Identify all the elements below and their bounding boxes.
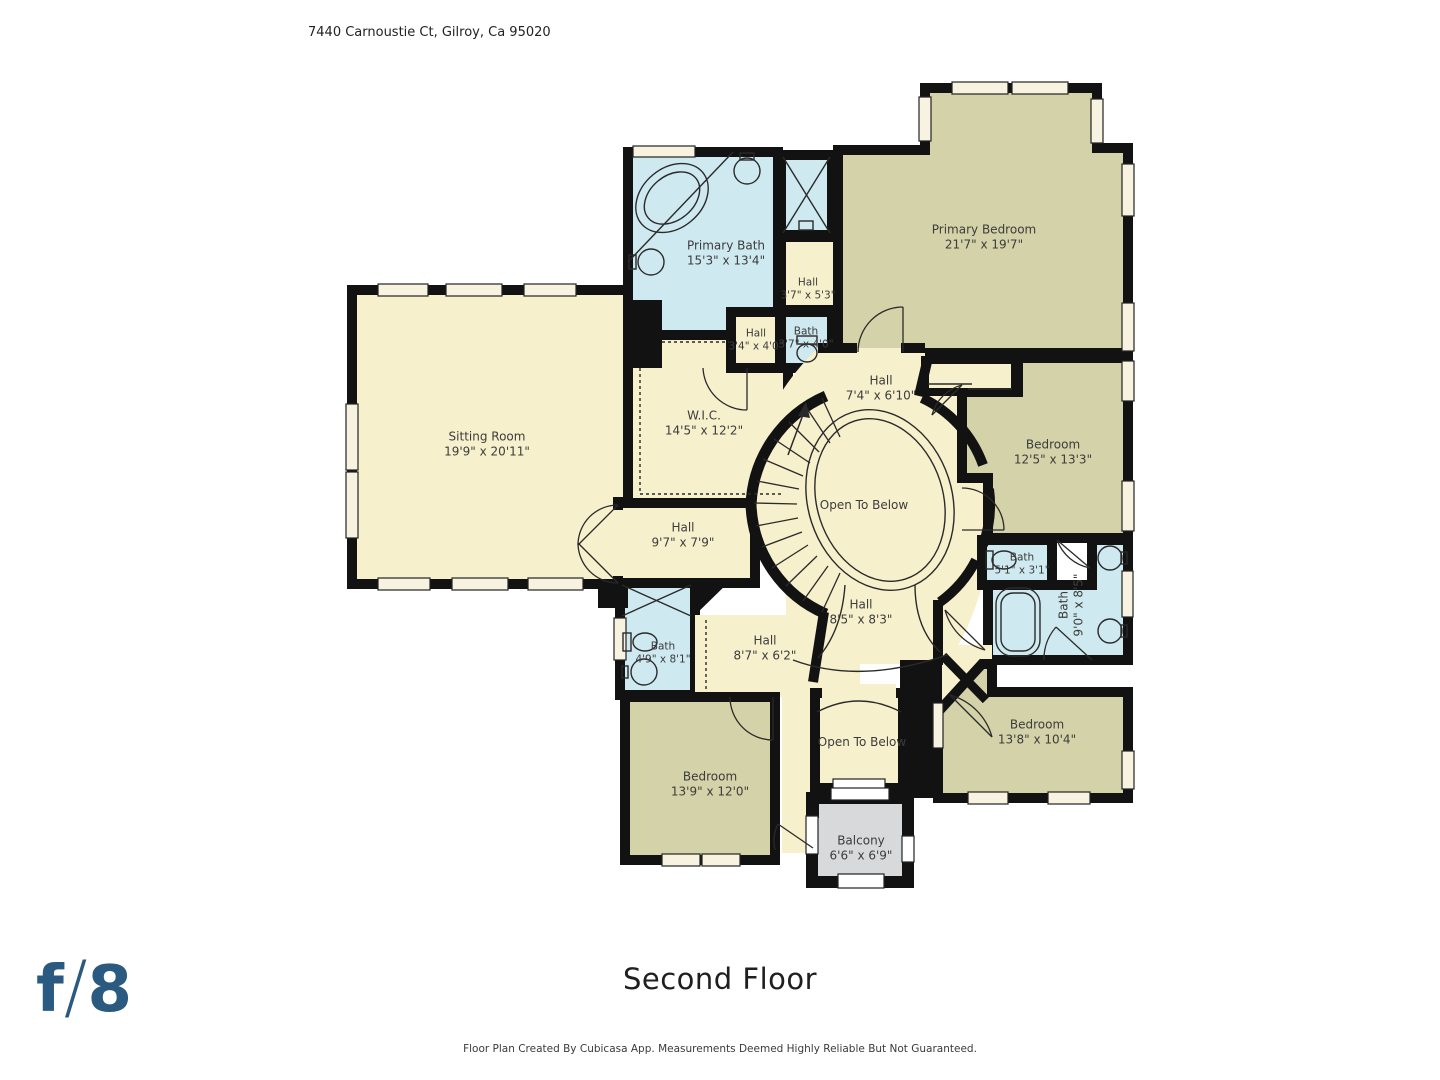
floor-title: Second Floor	[0, 962, 1440, 996]
room-name: Hall	[846, 374, 917, 389]
room-label-wic: W.I.C. 14'5" x 12'2"	[665, 409, 743, 438]
room-dims: 21'7" x 19'7"	[932, 237, 1036, 252]
room-label-primary-bedroom: Primary Bedroom 21'7" x 19'7"	[932, 223, 1036, 252]
logo-eight: 8	[87, 953, 132, 1027]
room-dims: 13'8" x 10'4"	[998, 732, 1076, 747]
room-dims: 13'9" x 12'0"	[671, 784, 749, 799]
room-name: Hall	[652, 521, 715, 536]
room-name: Hall	[728, 328, 783, 341]
room-label-primary-bath: Primary Bath 15'3" x 13'4"	[687, 239, 765, 268]
room-dims: 3'7" x 4'0"	[778, 338, 833, 351]
room-label-bath-west: Bath 4'9" x 8'1"	[635, 641, 690, 666]
room-name: Bedroom	[671, 770, 749, 785]
room-label-bedroom-se: Bedroom 13'8" x 10'4"	[998, 718, 1076, 747]
rooms-layer	[352, 88, 1128, 882]
room-label-bedroom-ne: Bedroom 12'5" x 13'3"	[1014, 438, 1092, 467]
room-dims: 8'5" x 8'3"	[830, 612, 893, 627]
room-label-hall-top: Hall 7'4" x 6'10"	[846, 374, 917, 403]
f8-logo: f/8	[36, 952, 132, 1025]
room-dims: 7'4" x 6'10"	[846, 388, 917, 403]
room-dims: 6'6" x 6'9"	[830, 848, 893, 863]
room-label-bath-small: Bath 3'7" x 4'0"	[778, 326, 833, 351]
room-dims: 3'7" x 5'3"	[780, 289, 835, 302]
room-dims: 4'9" x 8'1"	[635, 653, 690, 666]
room-label-hall-small: Hall 3'4" x 4'0"	[728, 328, 783, 353]
room-name: W.I.C.	[665, 409, 743, 424]
room-name: Bath	[635, 641, 690, 654]
room-dims: 15'3" x 13'4"	[687, 253, 765, 268]
room-name: Bath	[778, 326, 833, 339]
room-label-sitting-room: Sitting Room 19'9" x 20'11"	[444, 430, 530, 459]
room-name: Primary Bath	[687, 239, 765, 254]
room-name: Open To Below	[820, 498, 908, 513]
room-dims: 8'7" x 6'2"	[734, 648, 797, 663]
disclaimer-text: Floor Plan Created By Cubicasa App. Meas…	[0, 1043, 1440, 1055]
room-dims: 3'4" x 4'0"	[728, 340, 783, 353]
room-dims: 5'1" x 3'1"	[994, 564, 1049, 577]
room-dims: 14'5" x 12'2"	[665, 423, 743, 438]
room-dims: 19'9" x 20'11"	[444, 444, 530, 459]
door-bath-east-top	[1057, 540, 1090, 568]
room-label-hall-west: Hall 9'7" x 7'9"	[652, 521, 715, 550]
room-name: Bath	[1057, 574, 1072, 637]
floor-plan-page: 7440 Carnoustie Ct, Gilroy, Ca 95020	[0, 0, 1440, 1080]
room-label-bath-east: Bath 9'0" x 8'5"	[1057, 574, 1086, 637]
room-name: Bedroom	[1014, 438, 1092, 453]
logo-f: f	[36, 953, 64, 1027]
room-label-hall-center: Hall 8'5" x 8'3"	[830, 598, 893, 627]
room-dims: 9'0" x 8'5"	[1071, 574, 1086, 637]
room-label-open-to-below-center: Open To Below	[820, 498, 908, 513]
room-name: Sitting Room	[444, 430, 530, 445]
room-label-open-to-below-south: Open To Below	[818, 735, 906, 750]
room-label-hall-upper: Hall 3'7" x 5'3"	[780, 277, 835, 302]
room-label-bath-toilet: Bath 5'1" x 3'1"	[994, 552, 1049, 577]
room-dims: 12'5" x 13'3"	[1014, 452, 1092, 467]
room-name: Primary Bedroom	[932, 223, 1036, 238]
room-name: Hall	[780, 277, 835, 290]
room-label-bedroom-sw: Bedroom 13'9" x 12'0"	[671, 770, 749, 799]
room-name: Hall	[734, 634, 797, 649]
room-name: Bath	[994, 552, 1049, 565]
floor-plan-drawing	[0, 0, 1440, 1080]
room-name: Hall	[830, 598, 893, 613]
room-label-hall-south: Hall 8'7" x 6'2"	[734, 634, 797, 663]
room-name: Balcony	[830, 834, 893, 849]
room-name: Bedroom	[998, 718, 1076, 733]
room-label-balcony: Balcony 6'6" x 6'9"	[830, 834, 893, 863]
room-dims: 9'7" x 7'9"	[652, 535, 715, 550]
logo-slash: /	[64, 946, 88, 1028]
room-name: Open To Below	[818, 735, 906, 750]
